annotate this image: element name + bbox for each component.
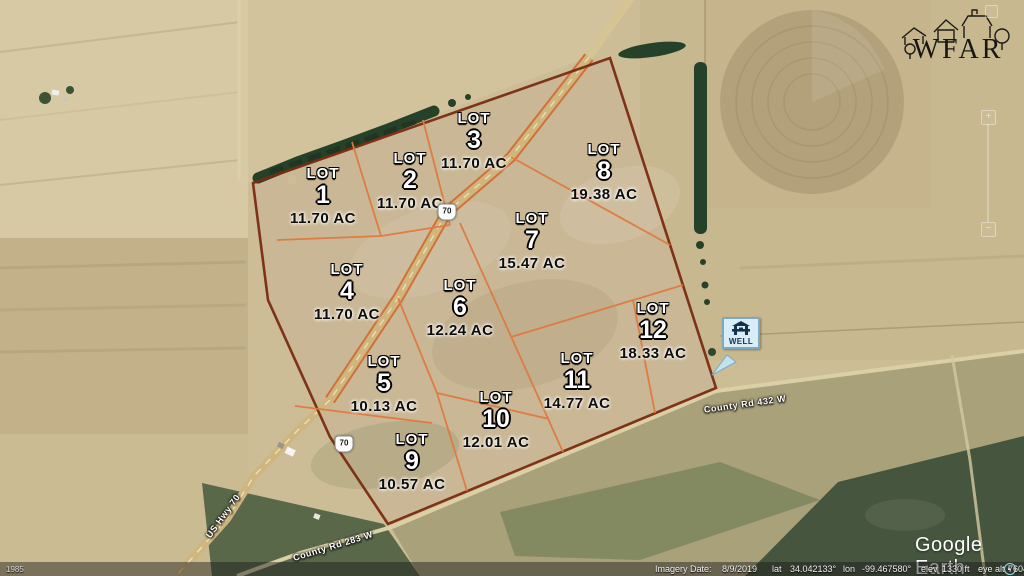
imagery-date-label: Imagery Date: <box>655 564 712 574</box>
well-icon <box>731 321 751 336</box>
look-joystick[interactable] <box>985 5 998 18</box>
wfar-logo: WFAR <box>894 2 1018 66</box>
well-placemark[interactable]: WELL <box>722 317 760 349</box>
lon-label: lon <box>843 564 855 574</box>
google-earth-viewport[interactable]: LOT111.70 ACLOT211.70 ACLOT311.70 ACLOT4… <box>0 0 1024 576</box>
zoom-out-button[interactable]: − <box>981 222 996 237</box>
lat-label: lat <box>772 564 782 574</box>
elev-value: 1330 ft <box>942 564 970 574</box>
eye-alt-label: eye alt <box>978 564 1005 574</box>
zoom-in-button[interactable]: + <box>981 110 996 125</box>
history-year-label: 1985 <box>6 565 24 574</box>
elev-label: elev <box>921 564 938 574</box>
zoom-slider-track[interactable] <box>987 124 989 222</box>
lon-value: -99.467580° <box>862 564 911 574</box>
status-bar: Imagery Date: 8/9/2019 lat 34.042133° lo… <box>0 562 1024 576</box>
wfar-text: WFAR <box>913 34 1004 65</box>
compass-icon[interactable] <box>1004 563 1016 575</box>
lat-value: 34.042133° <box>790 564 836 574</box>
imagery-date-value: 8/9/2019 <box>722 564 757 574</box>
satellite-background <box>0 0 1024 576</box>
well-label: WELL <box>729 337 753 346</box>
